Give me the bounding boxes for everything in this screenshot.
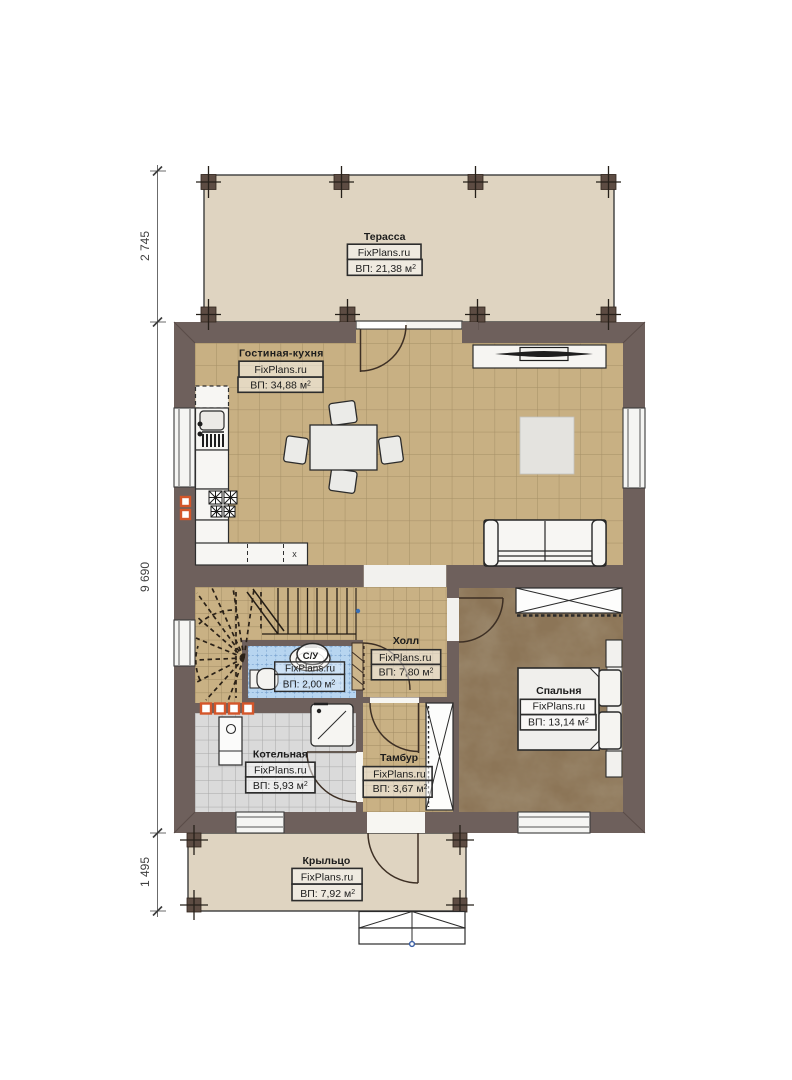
svg-text:FixPlans.ru: FixPlans.ru <box>301 871 354 883</box>
svg-text:ВП: 2,00 м2: ВП: 2,00 м2 <box>283 680 336 691</box>
svg-text:FixPlans.ru: FixPlans.ru <box>379 652 432 664</box>
svg-text:FixPlans.ru: FixPlans.ru <box>373 768 426 780</box>
svg-text:9 690: 9 690 <box>138 562 152 592</box>
svg-text:FixPlans.ru: FixPlans.ru <box>254 364 307 376</box>
svg-text:Крыльцо: Крыльцо <box>303 855 351 867</box>
svg-text:Котельная: Котельная <box>253 749 308 761</box>
svg-text:ВП: 7,80 м2: ВП: 7,80 м2 <box>379 666 434 678</box>
svg-text:ВП: 34,88 м2: ВП: 34,88 м2 <box>250 380 311 392</box>
svg-text:Тамбур: Тамбур <box>380 752 418 764</box>
svg-text:ВП: 21,38 м2: ВП: 21,38 м2 <box>355 263 416 275</box>
svg-text:ВП: 5,93 м2: ВП: 5,93 м2 <box>253 780 308 792</box>
svg-text:x: x <box>292 549 297 559</box>
svg-text:Спальня: Спальня <box>536 685 581 697</box>
svg-text:Холл: Холл <box>393 635 419 647</box>
svg-text:FixPlans.ru: FixPlans.ru <box>254 765 307 777</box>
svg-text:С/У: С/У <box>303 651 319 662</box>
svg-text:ВП: 13,14 м2: ВП: 13,14 м2 <box>528 717 589 729</box>
svg-text:FixPlans.ru: FixPlans.ru <box>358 247 411 259</box>
svg-text:ВП: 3,67 м2: ВП: 3,67 м2 <box>373 783 428 795</box>
svg-text:Терасса: Терасса <box>364 231 406 243</box>
svg-text:FixPlans.ru: FixPlans.ru <box>285 664 335 675</box>
svg-text:2 745: 2 745 <box>138 231 152 261</box>
svg-text:Гостиная-кухня: Гостиная-кухня <box>239 348 324 360</box>
svg-text:1 495: 1 495 <box>138 857 152 887</box>
svg-text:FixPlans.ru: FixPlans.ru <box>533 701 586 713</box>
svg-text:ВП: 7,92 м2: ВП: 7,92 м2 <box>300 888 355 900</box>
